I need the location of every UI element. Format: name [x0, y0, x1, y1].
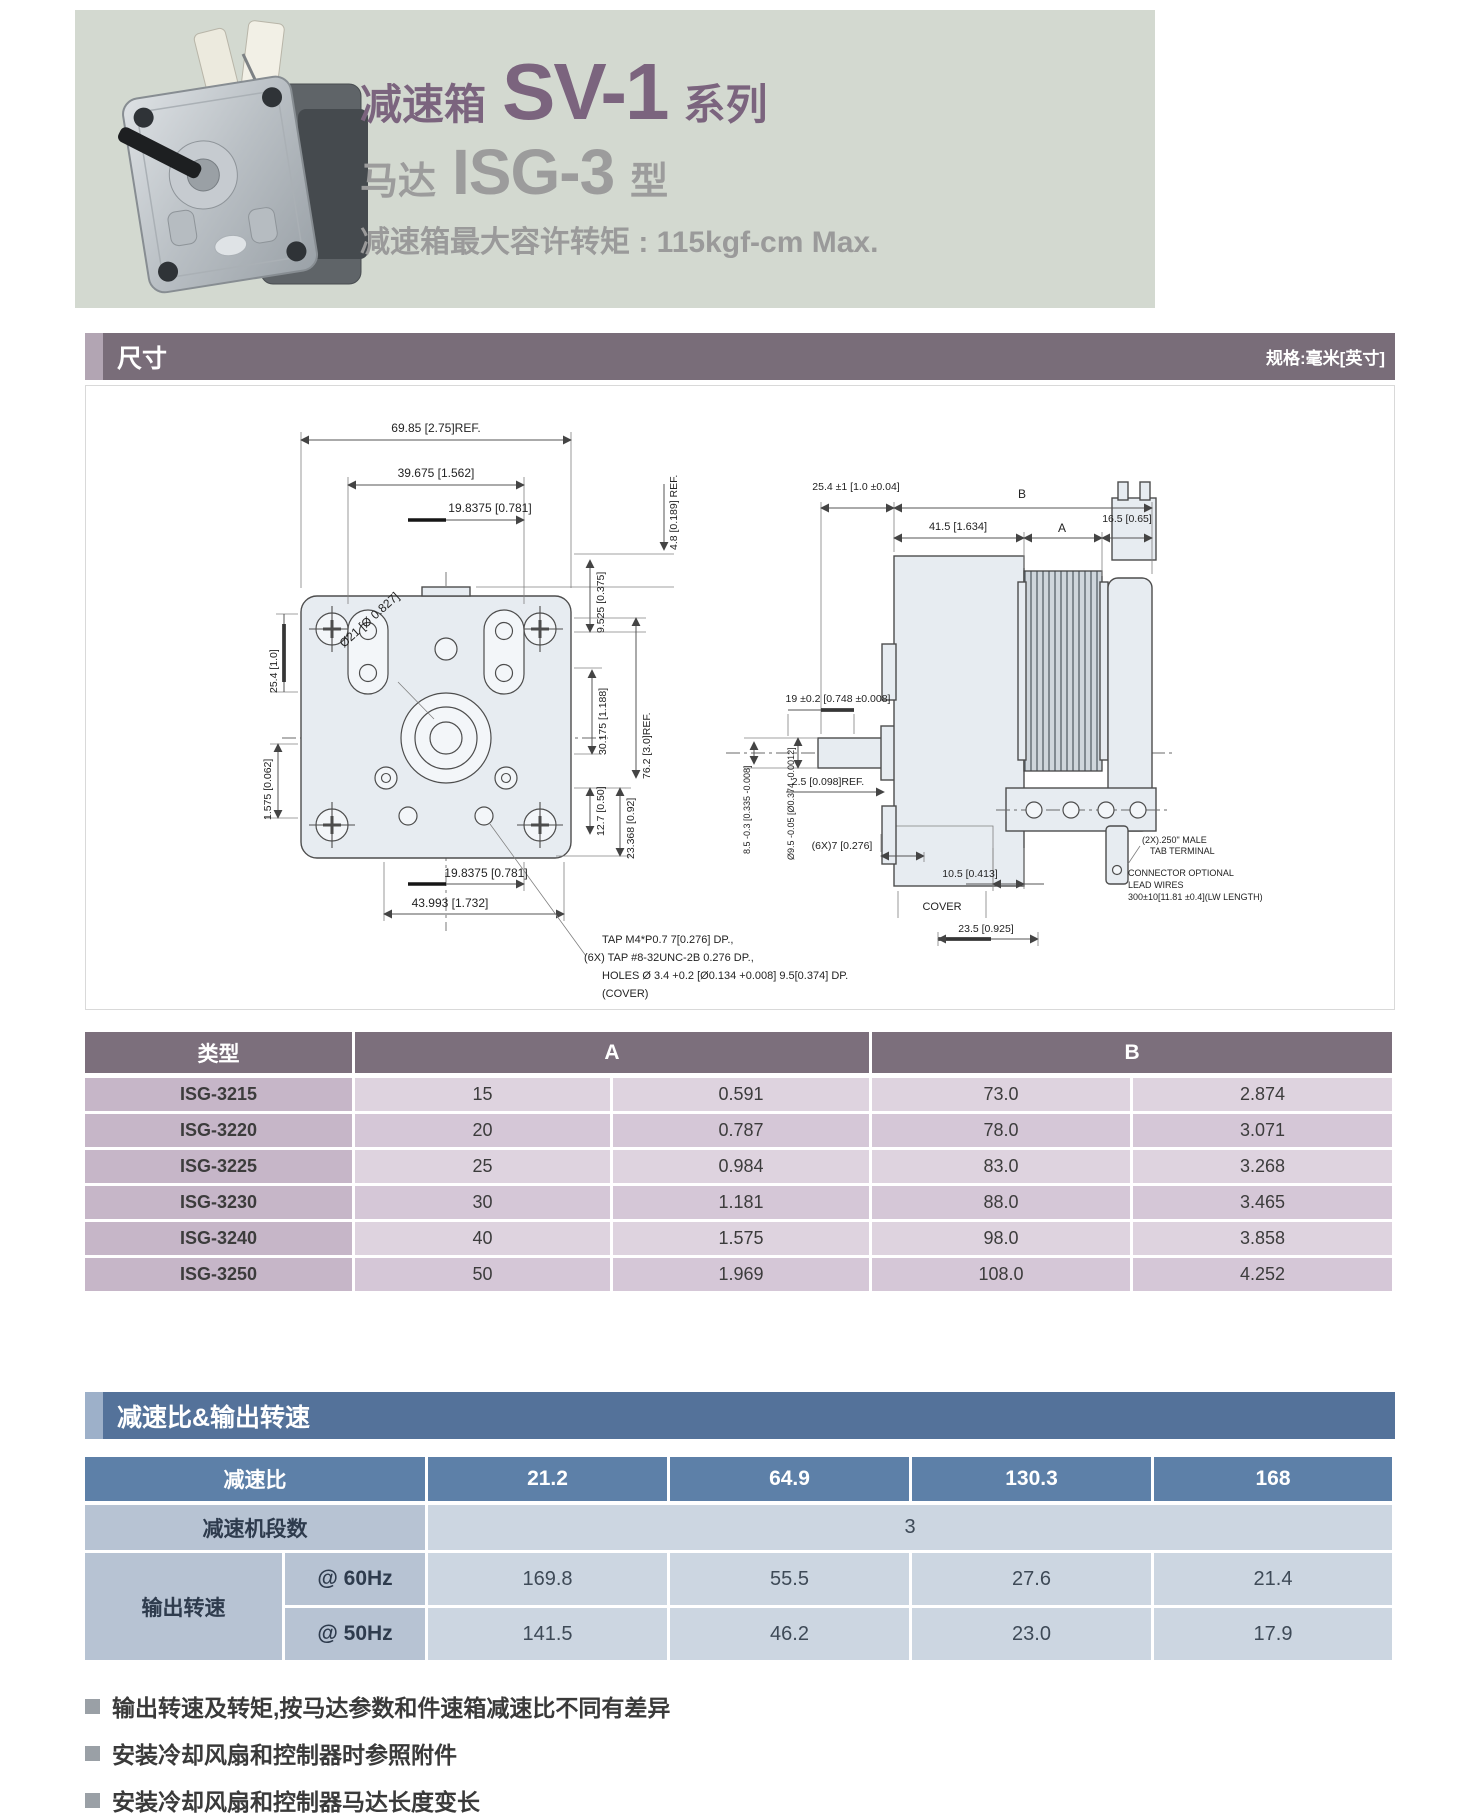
footnote-item: 输出转速及转矩,按马达参数和件速箱减速比不同有差异: [85, 1689, 1395, 1723]
dim-label-width-ref: 69.85 [2.75]REF.: [391, 421, 480, 435]
ratio-value: 64.9: [670, 1457, 912, 1505]
technical-drawing-panel: 69.85 [2.75]REF. 39.675 [1.562] 19.8375 …: [85, 385, 1395, 1010]
title-suffix: 系列: [683, 71, 767, 132]
dim-label-127: 12.7 [0.50]: [595, 786, 607, 836]
footnote-item: 安装冷却风扇和控制器时参照附件: [85, 1736, 1395, 1770]
b-mm-cell: 83.0: [872, 1150, 1133, 1186]
dim-label-235: 23.5 [0.925]: [958, 923, 1014, 935]
title-line: 减速箱 SV-1 系列: [360, 56, 878, 132]
gear-motor-photo-illustration: [93, 14, 393, 304]
header-banner: 减速箱 SV-1 系列 马达 ISG-3 型 减速箱最大容许转矩 : 115kg…: [75, 10, 1155, 308]
section-ratio-title: 减速比&输出转速: [103, 1398, 310, 1434]
a-in-cell: 0.787: [613, 1114, 872, 1150]
type-cell: ISG-3220: [85, 1114, 355, 1150]
b-in-cell: 3.071: [1133, 1114, 1395, 1150]
dim-label-6x7: (6X)7 [0.276]: [812, 840, 873, 852]
table-row: ISG-3220 20 0.787 78.0 3.071: [85, 1114, 1395, 1150]
dim-label-48: 4.8 [0.189] REF.: [668, 475, 680, 550]
table-row: ISG-3230 30 1.181 88.0 3.465: [85, 1186, 1395, 1222]
unit-note: 规格:毫米[英寸]: [1266, 344, 1385, 369]
connector-note-line3: 300±10[11.81 ±0.4](LW LENGTH): [1128, 892, 1263, 902]
dim-label-43993: 43.993 [1.732]: [412, 896, 489, 910]
subtitle-suffix: 型: [630, 150, 668, 205]
a-in-cell: 1.181: [613, 1186, 872, 1222]
type-cell: ISG-3225: [85, 1150, 355, 1186]
a-in-cell: 1.575: [613, 1222, 872, 1258]
dim-label-762-ref: 76.2 [3.0]REF.: [641, 712, 653, 779]
front-view: 69.85 [2.75]REF. 39.675 [1.562] 19.8375 …: [262, 421, 848, 1000]
type-cell: ISG-3240: [85, 1222, 355, 1258]
page-content: 尺寸 规格:毫米[英寸]: [85, 333, 1395, 1817]
footnotes: 输出转速及转矩,按马达参数和件速箱减速比不同有差异 安装冷却风扇和控制器时参照附…: [85, 1689, 1395, 1817]
a-mm-cell: 20: [355, 1114, 613, 1150]
technical-drawing: 69.85 [2.75]REF. 39.675 [1.562] 19.8375 …: [86, 386, 1396, 1011]
dim-label-25ref: 2.5 [0.098]REF.: [792, 776, 864, 788]
title-prefix: 减速箱: [360, 71, 486, 132]
output-value: 46.2: [670, 1608, 912, 1663]
torque-note: 减速箱最大容许转矩 : 115kgf-cm Max.: [360, 217, 878, 261]
dim-label-shaft-dia95: Ø9.5 -0.05 [Ø0.374 -0.0012]: [786, 747, 796, 860]
output-label: 输出转速: [85, 1553, 285, 1663]
freq-label-60hz: @ 60Hz: [285, 1553, 428, 1608]
tab-terminal-note-line1: (2X).250" MALE: [1142, 835, 1207, 845]
square-bullet-icon: [85, 1746, 100, 1761]
dim-label-half-span-top: 19.8375 [0.781]: [448, 501, 531, 515]
tap-note-line3: HOLES Ø 3.4 +0.2 [Ø0.134 +0.008] 9.5[0.3…: [602, 970, 848, 982]
output-value: 17.9: [1154, 1608, 1395, 1663]
type-cell: ISG-3250: [85, 1258, 355, 1294]
a-in-cell: 0.591: [613, 1078, 872, 1114]
type-cell: ISG-3230: [85, 1186, 355, 1222]
ratio-label: 减速比: [85, 1457, 428, 1505]
section-ratio-header: 减速比&输出转速: [85, 1392, 1395, 1439]
section-dimensions-title: 尺寸: [103, 339, 167, 375]
output-value: 23.0: [912, 1608, 1154, 1663]
table-row: ISG-3250 50 1.969 108.0 4.252: [85, 1258, 1395, 1294]
subtitle-model: ISG-3: [452, 142, 614, 203]
ratio-value: 130.3: [912, 1457, 1154, 1505]
cover-label: COVER: [922, 901, 961, 913]
output-value: 141.5: [428, 1608, 670, 1663]
gearbox-plate: [110, 74, 319, 296]
a-mm-cell: 30: [355, 1186, 613, 1222]
dim-label-30175: 30.175 [1.188]: [597, 688, 609, 755]
section-accent-square: [85, 1392, 103, 1439]
type-cell: ISG-3215: [85, 1078, 355, 1114]
tap-note-line2: (6X) TAP #8-32UNC-2B 0.276 DP.,: [584, 952, 754, 964]
output-value: 55.5: [670, 1553, 912, 1608]
dim-label-23368: 23.368 [0.92]: [625, 798, 637, 859]
b-in-cell: 3.465: [1133, 1186, 1395, 1222]
dim-label-105: 10.5 [0.413]: [942, 868, 998, 880]
dim-label-shaft-flat85: 8.5 -0.3 [0.335 -0.008]: [742, 765, 752, 854]
a-mm-cell: 25: [355, 1150, 613, 1186]
title-series: SV-1: [502, 56, 667, 128]
connector-note-line2: LEAD WIRES: [1128, 880, 1184, 890]
b-mm-cell: 78.0: [872, 1114, 1133, 1150]
b-mm-cell: 98.0: [872, 1222, 1133, 1258]
stages-row: 减速机段数 3: [85, 1505, 1395, 1553]
output-row-60hz: 输出转速 @ 60Hz 169.8 55.5 27.6 21.4: [85, 1553, 1395, 1608]
a-mm-cell: 40: [355, 1222, 613, 1258]
a-in-cell: 0.984: [613, 1150, 872, 1186]
a-in-cell: 1.969: [613, 1258, 872, 1294]
output-value: 169.8: [428, 1553, 670, 1608]
table-row: ISG-3225 25 0.984 83.0 3.268: [85, 1150, 1395, 1186]
subtitle-prefix: 马达: [360, 150, 436, 205]
ratio-value: 21.2: [428, 1457, 670, 1505]
side-view: 25.4 ±1 [1.0 ±0.04] B 41.5 [1.634] A 16.…: [726, 481, 1263, 946]
dim-label-gearbox-depth: 41.5 [1.634]: [929, 521, 987, 533]
a-mm-cell: 50: [355, 1258, 613, 1294]
product-photo: [93, 14, 393, 304]
footnote-text: 安装冷却风扇和控制器马达长度变长: [112, 1783, 480, 1817]
b-in-cell: 2.874: [1133, 1078, 1395, 1114]
b-in-cell: 4.252: [1133, 1258, 1395, 1294]
footnote-item: 安装冷却风扇和控制器马达长度变长: [85, 1783, 1395, 1817]
dim-label-half-span-bottom: 19.8375 [0.781]: [444, 866, 527, 880]
stages-label: 减速机段数: [85, 1505, 428, 1553]
b-in-cell: 3.858: [1133, 1222, 1395, 1258]
dim-label-19: 19 ±0.2 [0.748 ±0.008]: [786, 693, 891, 705]
col-header-type: 类型: [85, 1032, 355, 1078]
header-titles: 减速箱 SV-1 系列 马达 ISG-3 型 减速箱最大容许转矩 : 115kg…: [360, 56, 878, 261]
a-mm-cell: 15: [355, 1078, 613, 1114]
tap-note-line4: (COVER): [602, 988, 648, 1000]
table-row: ISG-3240 40 1.575 98.0 3.858: [85, 1222, 1395, 1258]
col-header-b: B: [872, 1032, 1395, 1078]
footnote-text: 安装冷却风扇和控制器时参照附件: [112, 1736, 457, 1770]
dim-label-1575: 1.575 [0.062]: [262, 759, 274, 820]
ratio-header-row: 减速比 21.2 64.9 130.3 168: [85, 1457, 1395, 1505]
b-in-cell: 3.268: [1133, 1150, 1395, 1186]
dimensions-table-header: 类型 A B: [85, 1032, 1395, 1078]
dim-label-shaft-protrusion: 25.4 ±1 [1.0 ±0.04]: [812, 481, 900, 493]
output-value: 21.4: [1154, 1553, 1395, 1608]
table-row: ISG-3215 15 0.591 73.0 2.874: [85, 1078, 1395, 1114]
footnote-text: 输出转速及转矩,按马达参数和件速箱减速比不同有差异: [112, 1689, 670, 1723]
b-mm-cell: 108.0: [872, 1258, 1133, 1294]
dim-label-B: B: [1018, 487, 1026, 501]
dim-label-9525: 9.525 [0.375]: [595, 572, 607, 633]
square-bullet-icon: [85, 1793, 100, 1808]
b-mm-cell: 88.0: [872, 1186, 1133, 1222]
tab-terminal-note-line2: TAB TERMINAL: [1150, 846, 1215, 856]
b-mm-cell: 73.0: [872, 1078, 1133, 1114]
connector-note-line1: CONNECTOR OPTIONAL: [1128, 868, 1234, 878]
section-accent-square: [85, 333, 103, 380]
tap-note-line1: TAP M4*P0.7 7[0.276] DP.,: [602, 934, 733, 946]
square-bullet-icon: [85, 1699, 100, 1714]
output-value: 27.6: [912, 1553, 1154, 1608]
dimensions-table: 类型 A B ISG-3215 15 0.591 73.0 2.874 ISG-…: [85, 1032, 1395, 1294]
col-header-a: A: [355, 1032, 872, 1078]
ratio-output-table: 减速比 21.2 64.9 130.3 168 减速机段数 3 输出转速 @ 6…: [85, 1457, 1395, 1663]
section-dimensions-header: 尺寸 规格:毫米[英寸]: [85, 333, 1395, 380]
stages-value: 3: [428, 1505, 1395, 1553]
dim-label-endcap: 16.5 [0.65]: [1102, 513, 1152, 525]
dim-label-slot-span: 39.675 [1.562]: [398, 466, 475, 480]
dim-label-254: 25.4 [1.0]: [268, 649, 280, 693]
dim-label-A: A: [1058, 521, 1066, 535]
freq-label-50hz: @ 50Hz: [285, 1608, 428, 1663]
ratio-value: 168: [1154, 1457, 1395, 1505]
subtitle-line: 马达 ISG-3 型: [360, 142, 878, 205]
